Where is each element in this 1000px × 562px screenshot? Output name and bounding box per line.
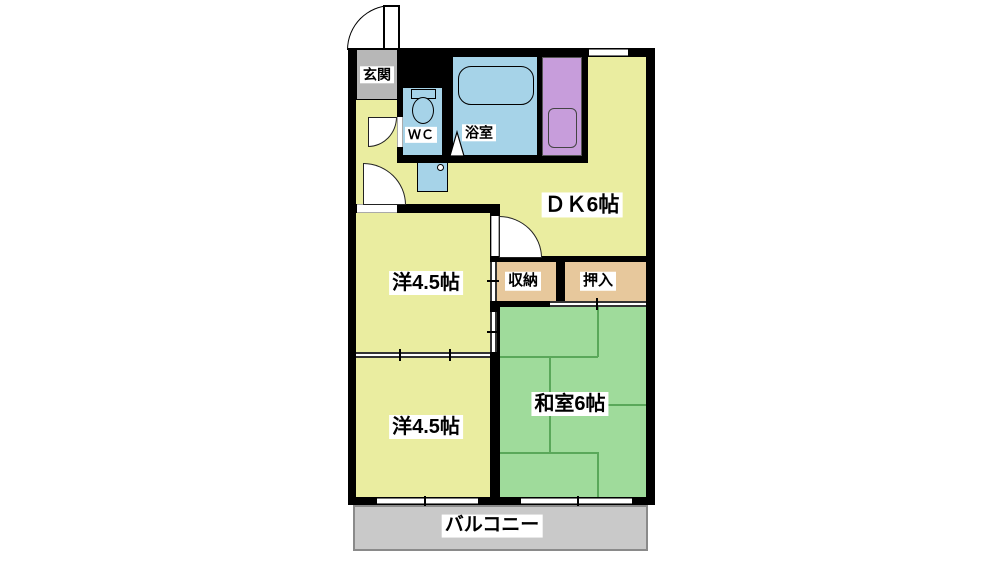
washitsu-label: 和室6帖 (531, 392, 608, 416)
tatami-line (500, 452, 598, 454)
bathtub-icon (458, 66, 534, 105)
window-tick (577, 496, 579, 506)
partition-tick (596, 298, 598, 310)
sliding-partition-western-rooms (356, 352, 490, 358)
kitchen-sink-icon (548, 108, 577, 148)
floor-plan: 玄関 ＷＣ 浴室 ＤＫ6帖 洋4.5帖 収納 押入 和室6帖 洋4.5帖 バルコ… (0, 0, 1000, 562)
western-room-lower-label: 洋4.5帖 (389, 415, 463, 439)
washbasin-faucet-icon (437, 164, 444, 171)
partition-tick (487, 331, 499, 333)
balcony-label: バルコニー (442, 515, 543, 538)
partition-tick (399, 349, 401, 361)
entrance-door-leaf (383, 5, 400, 50)
partition-tick (449, 349, 451, 361)
tatami-line (597, 452, 599, 497)
window-top-dk (589, 49, 628, 56)
toilet-bowl-icon (412, 97, 434, 124)
tatami-line (597, 307, 599, 357)
dk-floor-right (588, 57, 646, 164)
western-room-upper-label: 洋4.5帖 (389, 271, 463, 295)
storage-label: 収納 (505, 272, 541, 291)
wc-label: ＷＣ (405, 127, 437, 143)
wc-door-opening (397, 117, 403, 147)
western-upper-door-opening (357, 204, 397, 213)
genkan-label: 玄関 (360, 66, 394, 83)
dk-door-opening (491, 216, 499, 256)
partition-tick (487, 280, 499, 282)
oshiire-fusuma (550, 301, 646, 307)
bath-label: 浴室 (462, 124, 496, 141)
oshiire-label: 押入 (580, 272, 616, 291)
window-tick (424, 496, 426, 506)
window-bottom-western (377, 498, 478, 504)
dk-label: ＤＫ6帖 (542, 192, 623, 217)
